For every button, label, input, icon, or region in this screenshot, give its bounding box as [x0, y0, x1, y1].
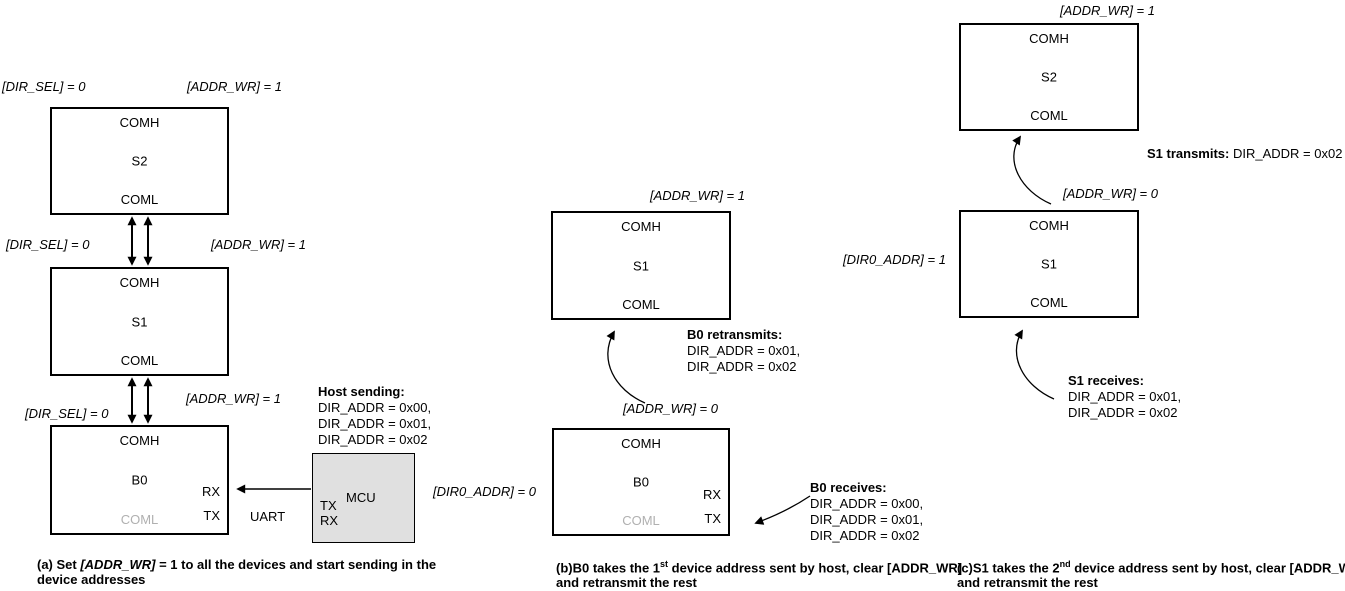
rx-port-label: RX — [703, 487, 721, 502]
addr-wr-label: [ADDR_WR] = 1 — [211, 237, 306, 252]
note-line: DIR_ADDR = 0x02 — [810, 528, 923, 544]
device-name: S2 — [961, 70, 1137, 85]
caption-text: (a) Set — [37, 557, 80, 572]
receive-arrow-b — [756, 496, 810, 523]
comh-port-label: COMH — [52, 433, 227, 448]
caption-line: and retransmit the rest — [957, 575, 1345, 590]
coml-port-label: COML — [553, 297, 729, 312]
device-box-s1: COMH S1 COML — [50, 267, 229, 376]
addr-wr-label: [ADDR_WR] = 1 — [186, 391, 281, 406]
note-line: DIR_ADDR = 0x02 — [318, 432, 431, 448]
note-title: B0 receives: — [810, 480, 923, 496]
caption-line: device addresses — [37, 572, 436, 587]
note-title: S1 receives: — [1068, 373, 1181, 389]
note-line: DIR_ADDR = 0x01, — [1068, 389, 1181, 405]
coml-port-label: COML — [52, 192, 227, 207]
caption-a: (a) Set [ADDR_WR] = 1 to all the devices… — [37, 557, 436, 587]
caption-c: (c)S1 takes the 2nd device address sent … — [957, 557, 1345, 590]
caption-register: [ADDR_WR] — [80, 557, 155, 572]
note-line: DIR_ADDR = 0x02 — [1068, 405, 1181, 421]
caption-line: (a) Set [ADDR_WR] = 1 to all the devices… — [37, 557, 436, 572]
comh-port-label: COMH — [52, 115, 227, 130]
device-name: S1 — [553, 258, 729, 273]
device-box-s1: COMH S1 COML — [551, 211, 731, 320]
mcu-name: MCU — [346, 490, 376, 505]
comh-port-label: COMH — [961, 31, 1137, 46]
addr-wr-label: [ADDR_WR] = 0 — [1063, 186, 1158, 201]
addr-wr-label: [ADDR_WR] = 1 — [1060, 3, 1155, 18]
coml-port-label: COML — [961, 108, 1137, 123]
device-name: B0 — [52, 473, 227, 488]
note-title: Host sending: — [318, 384, 431, 400]
device-box-s2: COMH S2 COML — [959, 23, 1139, 131]
comh-port-label: COMH — [52, 275, 227, 290]
note-line: DIR_ADDR = 0x01, — [687, 343, 800, 359]
device-box-s2: COMH S2 COML — [50, 107, 229, 215]
note-line: DIR_ADDR = 0x00, — [810, 496, 923, 512]
device-name: B0 — [554, 475, 728, 490]
coml-port-label: COML — [961, 295, 1137, 310]
transmit-arrow-c — [1014, 137, 1051, 204]
caption-text: device address sent by host, clear [ADDR… — [1071, 560, 1345, 575]
caption-line: (b)B0 takes the 1st device address sent … — [556, 557, 962, 575]
addr-wr-label: [ADDR_WR] = 1 — [650, 188, 745, 203]
note-line: DIR_ADDR = 0x02 — [687, 359, 800, 375]
comh-port-label: COMH — [554, 436, 728, 451]
daisy-chain-addressing-figure: [DIR_SEL] = 0 [ADDR_WR] = 1 COMH S2 COML… — [0, 0, 1345, 591]
caption-b: (b)B0 takes the 1st device address sent … — [556, 557, 962, 590]
device-name: S1 — [961, 257, 1137, 272]
coml-port-label: COML — [554, 513, 728, 528]
device-box-b0: COMH B0 RX TX COML — [50, 425, 229, 535]
caption-text: = 1 to all the devices and start sending… — [155, 557, 436, 572]
note-title: B0 retransmits: — [687, 327, 800, 343]
ordinal-superscript: st — [660, 559, 668, 569]
coml-port-label: COML — [52, 512, 227, 527]
caption-text: (b)B0 takes the 1 — [556, 560, 660, 575]
receive-arrow-c — [1016, 331, 1054, 399]
device-name: S2 — [52, 154, 227, 169]
comh-port-label: COMH — [553, 219, 729, 234]
caption-line: (c)S1 takes the 2nd device address sent … — [957, 557, 1345, 575]
s1-transmits-note: S1 transmits: DIR_ADDR = 0x02 — [1147, 146, 1342, 162]
dir0-addr-label: [DIR0_ADDR] = 1 — [843, 252, 946, 267]
dir-sel-label: [DIR_SEL] = 0 — [2, 79, 85, 94]
s1-receives-note: S1 receives: DIR_ADDR = 0x01, DIR_ADDR =… — [1068, 373, 1181, 421]
addr-wr-label: [ADDR_WR] = 1 — [187, 79, 282, 94]
dir0-addr-label: [DIR0_ADDR] = 0 — [433, 484, 536, 499]
b0-retransmits-note: B0 retransmits: DIR_ADDR = 0x01, DIR_ADD… — [687, 327, 800, 375]
dir-sel-label: [DIR_SEL] = 0 — [6, 237, 89, 252]
ordinal-superscript: nd — [1060, 559, 1071, 569]
retransmit-arrow-b — [608, 332, 645, 403]
device-name: S1 — [52, 314, 227, 329]
caption-text: (c)S1 takes the 2 — [957, 560, 1060, 575]
note-line: DIR_ADDR = 0x01, — [318, 416, 431, 432]
device-box-b0: COMH B0 RX TX COML — [552, 428, 730, 536]
note-line: DIR_ADDR = 0x01, — [810, 512, 923, 528]
rx-port-label: RX — [202, 484, 220, 499]
note-text: DIR_ADDR = 0x02 — [1229, 146, 1342, 161]
comh-port-label: COMH — [961, 218, 1137, 233]
rx-port-label: RX — [320, 513, 338, 528]
caption-text: device address sent by host, clear [ADDR… — [668, 560, 962, 575]
mcu-box: TX RX MCU — [312, 453, 415, 543]
caption-line: and retransmit the rest — [556, 575, 962, 590]
coml-port-label: COML — [52, 353, 227, 368]
addr-wr-label: [ADDR_WR] = 0 — [623, 401, 718, 416]
device-box-s1: COMH S1 COML — [959, 210, 1139, 318]
host-sending-note: Host sending: DIR_ADDR = 0x00, DIR_ADDR … — [318, 384, 431, 448]
note-title: S1 transmits: — [1147, 146, 1229, 161]
tx-port-label: TX — [320, 498, 337, 513]
b0-receives-note: B0 receives: DIR_ADDR = 0x00, DIR_ADDR =… — [810, 480, 923, 544]
dir-sel-label: [DIR_SEL] = 0 — [25, 406, 108, 421]
note-line: DIR_ADDR = 0x00, — [318, 400, 431, 416]
uart-label: UART — [250, 509, 285, 524]
